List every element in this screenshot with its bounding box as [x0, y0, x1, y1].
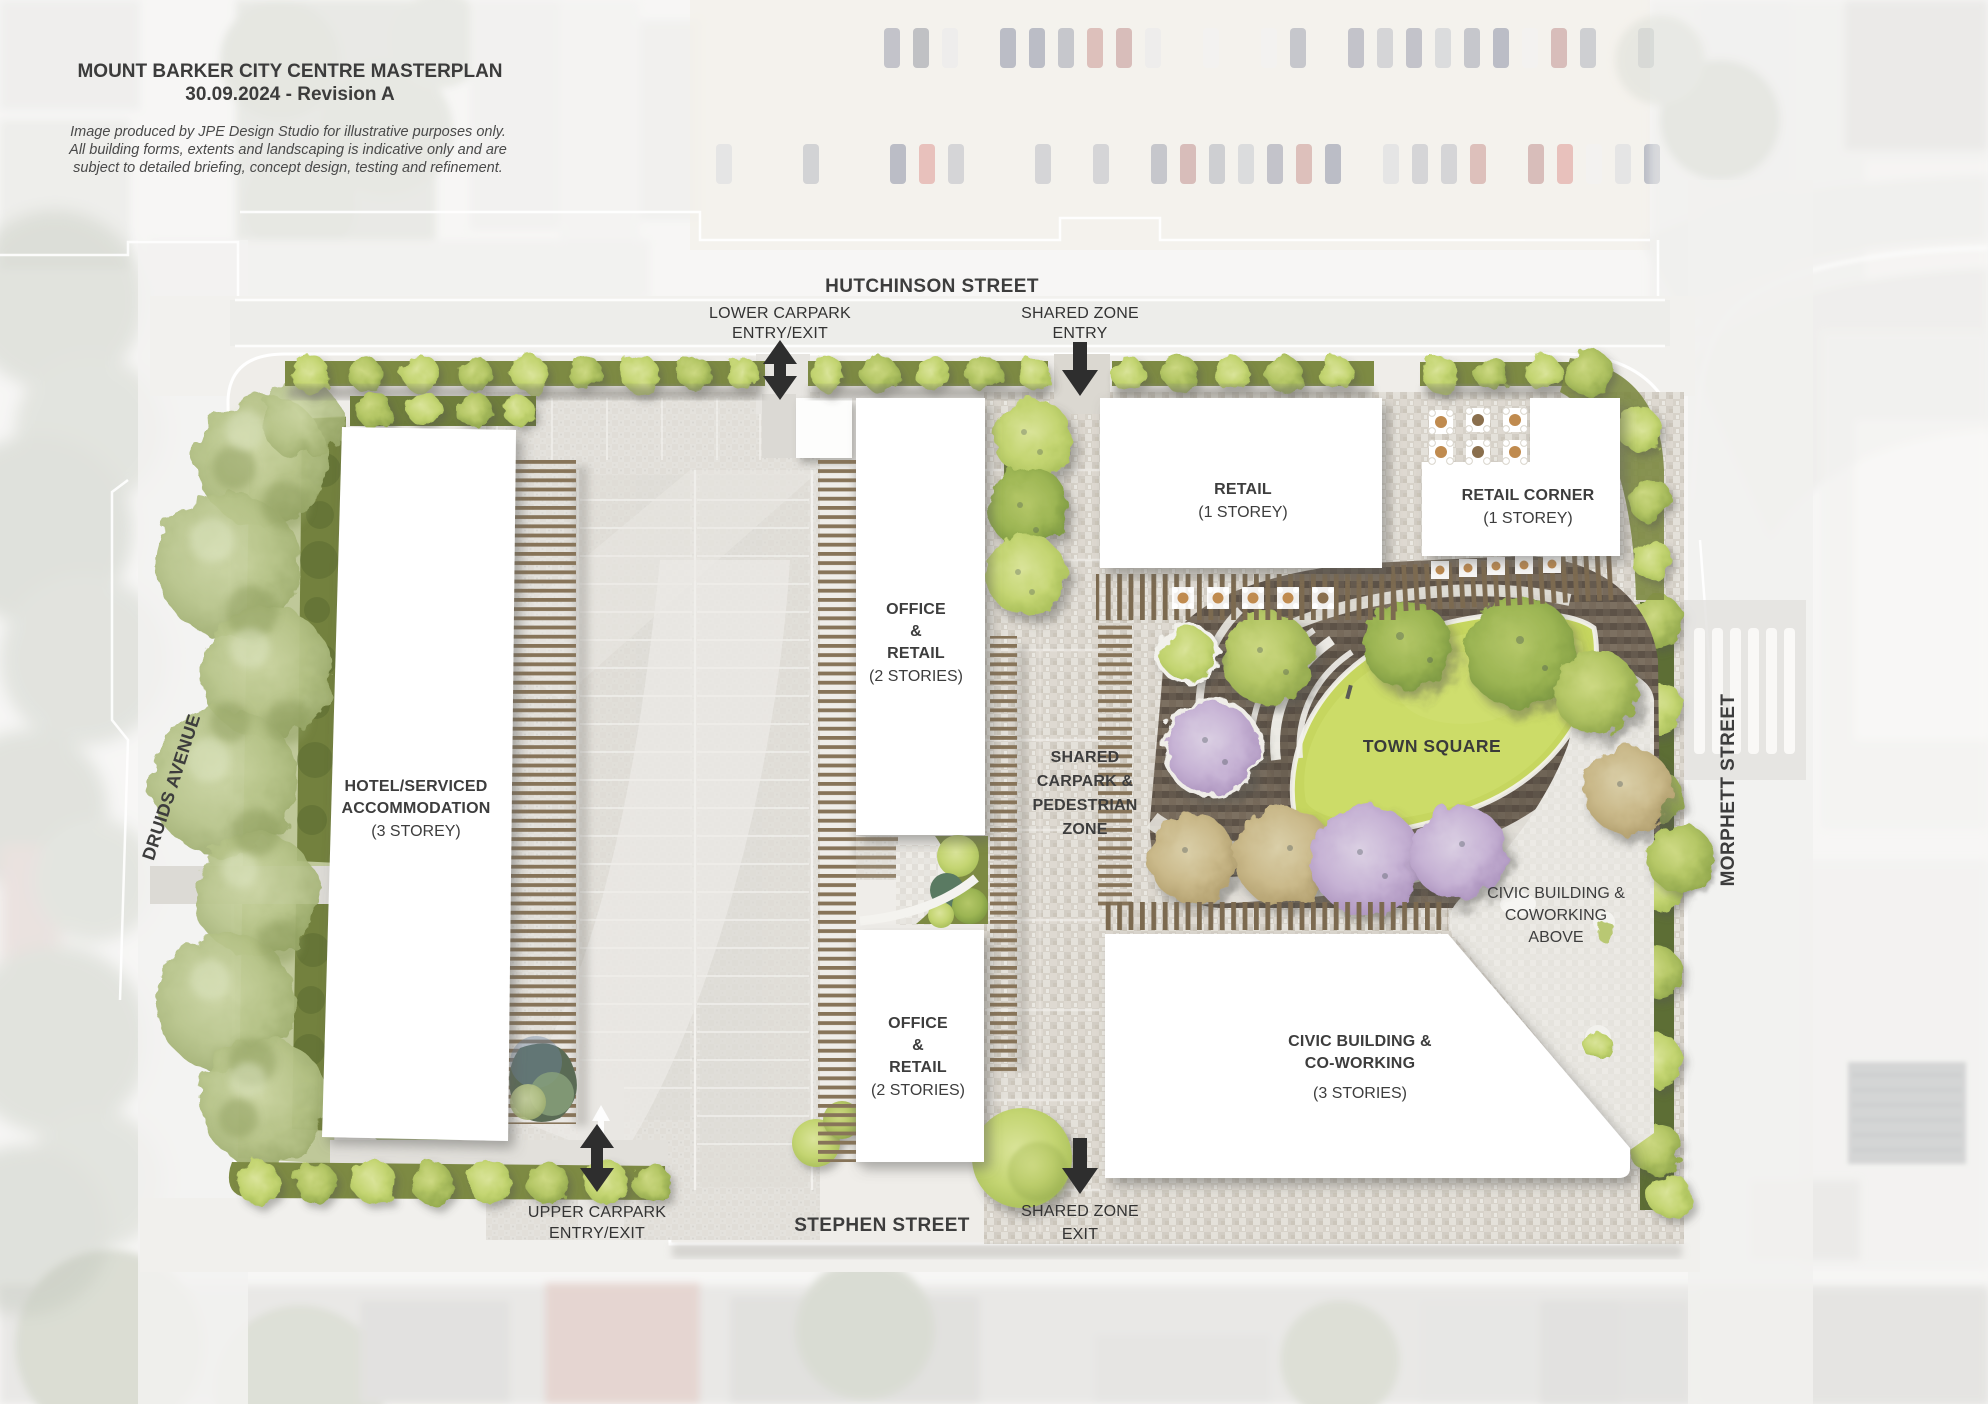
- svg-text:(1 STOREY): (1 STOREY): [1483, 510, 1573, 527]
- svg-text:CIVIC BUILDING &: CIVIC BUILDING &: [1487, 885, 1625, 902]
- svg-text:ABOVE: ABOVE: [1528, 929, 1583, 946]
- svg-text:CARPARK &: CARPARK &: [1037, 773, 1134, 790]
- svg-text:ENTRY: ENTRY: [1053, 325, 1108, 342]
- svg-text:ACCOMMODATION: ACCOMMODATION: [342, 800, 491, 817]
- svg-text:Image produced by JPE Design S: Image produced by JPE Design Studio for …: [70, 124, 506, 140]
- svg-text:ENTRY/EXIT: ENTRY/EXIT: [549, 1225, 645, 1242]
- svg-text:ZONE: ZONE: [1062, 821, 1107, 838]
- svg-text:HOTEL/SERVICED: HOTEL/SERVICED: [345, 778, 488, 795]
- svg-text:RETAIL CORNER: RETAIL CORNER: [1462, 487, 1595, 504]
- svg-text:OFFICE: OFFICE: [888, 1015, 948, 1032]
- svg-text:(3 STOREY): (3 STOREY): [371, 823, 461, 840]
- svg-text:SHARED ZONE: SHARED ZONE: [1021, 1203, 1139, 1220]
- svg-text:COWORKING: COWORKING: [1505, 907, 1607, 924]
- svg-text:MOUNT BARKER CITY CENTRE MASTE: MOUNT BARKER CITY CENTRE MASTERPLAN: [77, 61, 502, 82]
- svg-text:CIVIC BUILDING &: CIVIC BUILDING &: [1288, 1033, 1432, 1050]
- svg-text:EXIT: EXIT: [1062, 1226, 1098, 1243]
- svg-text:MORPHETT STREET: MORPHETT STREET: [1718, 694, 1739, 887]
- svg-text:(2 STORIES): (2 STORIES): [871, 1082, 965, 1099]
- svg-text:SHARED: SHARED: [1051, 749, 1120, 766]
- svg-text:RETAIL: RETAIL: [887, 645, 945, 662]
- svg-text:OFFICE: OFFICE: [886, 601, 946, 618]
- svg-text:(1 STOREY): (1 STOREY): [1198, 504, 1288, 521]
- svg-text:&: &: [910, 623, 922, 640]
- svg-text:PEDESTRIAN: PEDESTRIAN: [1032, 797, 1137, 814]
- svg-text:(3 STORIES): (3 STORIES): [1313, 1085, 1407, 1102]
- svg-text:TOWN SQUARE: TOWN SQUARE: [1363, 736, 1501, 756]
- svg-text:HUTCHINSON STREET: HUTCHINSON STREET: [825, 276, 1039, 297]
- svg-text:CO-WORKING: CO-WORKING: [1305, 1055, 1415, 1072]
- svg-text:LOWER CARPARK: LOWER CARPARK: [709, 305, 851, 322]
- svg-text:(2 STORIES): (2 STORIES): [869, 668, 963, 685]
- svg-text:All building forms, extents an: All building forms, extents and landscap…: [68, 142, 507, 158]
- svg-text:&: &: [912, 1037, 924, 1054]
- svg-text:STEPHEN STREET: STEPHEN STREET: [794, 1215, 970, 1236]
- svg-text:RETAIL: RETAIL: [1214, 481, 1272, 498]
- svg-text:ENTRY/EXIT: ENTRY/EXIT: [732, 325, 828, 342]
- svg-text:subject to detailed briefing,: subject to detailed briefing, concept de…: [73, 160, 503, 176]
- svg-text:SHARED ZONE: SHARED ZONE: [1021, 305, 1139, 322]
- svg-text:RETAIL: RETAIL: [889, 1059, 947, 1076]
- svg-text:30.09.2024 - Revision A: 30.09.2024 - Revision A: [185, 84, 395, 105]
- svg-text:UPPER CARPARK: UPPER CARPARK: [528, 1204, 666, 1221]
